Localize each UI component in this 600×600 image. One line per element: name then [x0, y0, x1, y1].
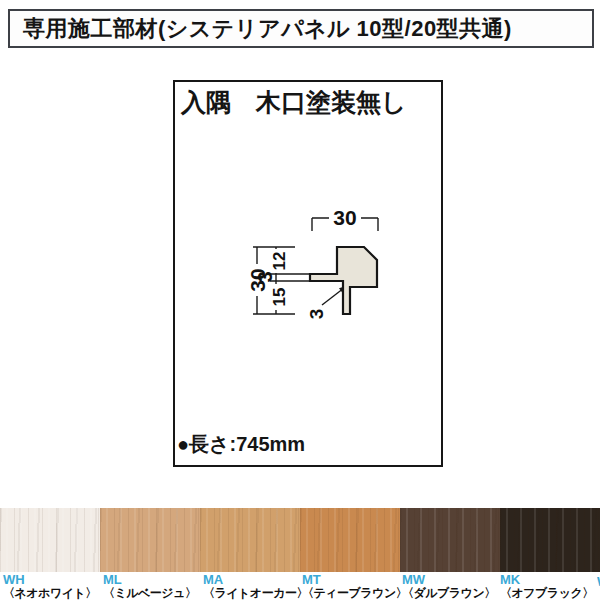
dim-upper-segment: 12: [270, 252, 289, 271]
swatch-label-MT: MT 〈ティーブラウン〉: [302, 573, 401, 600]
dim-lower-segment: 15: [270, 288, 289, 307]
swatch-MW: [400, 508, 500, 572]
color-code: WH: [3, 573, 102, 586]
color-name: 〈ミルベージュ〉: [103, 587, 202, 600]
color-name: 〈ダルブラウン〉: [402, 587, 501, 600]
dim-flange-thickness: 3: [254, 271, 276, 282]
swatch-labels: WH 〈ネオホワイト〉 ML 〈ミルベージュ〉 MA 〈ライトオーカー〉 MT …: [0, 573, 600, 600]
swatch-MT: [300, 508, 400, 572]
corner-profile-shape: [310, 247, 377, 314]
dim-leader-thickness: 3: [306, 309, 327, 320]
profile-drawing: 30 30 12 3 15 3: [173, 80, 443, 467]
color-swatch-strip: [0, 508, 600, 572]
product-panel: 入隅 木口塗装無し: [173, 80, 443, 467]
color-name: 〈ネオホワイト〉: [3, 587, 102, 600]
color-code: ML: [103, 573, 202, 586]
color-code: MA: [203, 573, 302, 586]
catalog-page: 専用施工部材(システリアパネル 10型/20型共通) 入隅 木口塗装無し: [0, 0, 600, 600]
color-code: MT: [302, 573, 401, 586]
color-name: 〈ライトオーカー〉: [203, 587, 302, 600]
swatch-MA: [200, 508, 300, 572]
swatch-label-MW: MW 〈ダルブラウン〉: [402, 573, 501, 600]
swatch-label-ML: ML 〈ミルベージュ〉: [103, 573, 202, 600]
swatch-label-MK: MK 〈オフブラック〉: [500, 573, 599, 600]
length-note: ●長さ:745mm: [177, 431, 305, 458]
swatch-MK: [500, 508, 600, 572]
section-header-bar: 専用施工部材(システリアパネル 10型/20型共通): [8, 9, 594, 48]
color-code: MK: [500, 573, 599, 586]
swatch-ML: [100, 508, 200, 572]
color-name: 〈ティーブラウン〉: [302, 587, 401, 600]
color-code: MW: [402, 573, 501, 586]
swatch-label-MA: MA 〈ライトオーカー〉: [203, 573, 302, 600]
dim-top-width: 30: [333, 206, 356, 229]
section-title: 専用施工部材(システリアパネル 10型/20型共通): [23, 14, 512, 44]
swatch-WH: [0, 508, 100, 572]
color-name: 〈オフブラック〉: [500, 587, 599, 600]
swatch-label-WH: WH 〈ネオホワイト〉: [3, 573, 102, 600]
